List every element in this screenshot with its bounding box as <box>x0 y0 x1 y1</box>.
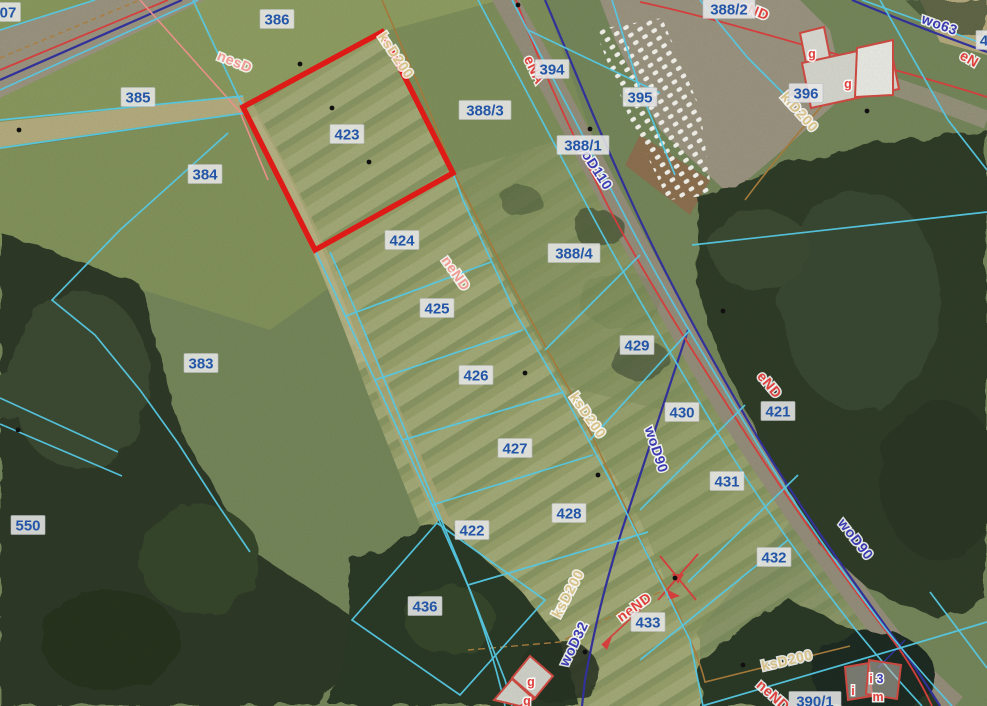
parcel-label-428: 428 <box>556 506 581 523</box>
survey-point <box>741 663 746 668</box>
parcel-label-426: 426 <box>463 368 488 385</box>
parcel-label-427: 427 <box>502 441 527 458</box>
building-label-i: i <box>851 684 854 698</box>
parcel-label-431: 431 <box>714 474 739 491</box>
map-viewport[interactable]: nesDksD200eNAeNDwo63eNklD200woD110neNDeN… <box>0 0 987 706</box>
parcel-label-430: 430 <box>669 405 694 422</box>
parcel-label-388/4: 388/4 <box>555 246 593 263</box>
survey-point <box>16 428 21 433</box>
survey-point <box>367 160 372 165</box>
parcel-label-432: 432 <box>761 550 786 567</box>
parcel-label-4: 4 <box>980 33 987 50</box>
parcel-label-429: 429 <box>624 338 649 355</box>
parcel-label-433: 433 <box>635 615 660 632</box>
building-label-i: i <box>869 672 872 686</box>
survey-point <box>588 127 593 132</box>
survey-point <box>17 128 22 133</box>
cadastral-map[interactable]: nesDksD200eNAeNDwo63eNklD200woD110neNDeN… <box>0 0 987 706</box>
building-label-m: m <box>872 690 883 704</box>
parcel-label-390/1: 390/1 <box>796 694 834 706</box>
parcel-label-423: 423 <box>334 127 359 144</box>
parcel-label-422: 422 <box>459 523 484 540</box>
survey-point <box>523 371 528 376</box>
parcel-label-388/1: 388/1 <box>564 138 602 155</box>
parcel-label-385: 385 <box>125 90 150 107</box>
building-label-g: g <box>808 47 816 61</box>
building-label-g: g <box>523 694 531 706</box>
parcel-label-394: 394 <box>539 62 565 79</box>
survey-point <box>865 109 870 114</box>
parcel-label-421: 421 <box>765 404 790 421</box>
parcel-label-395: 395 <box>627 90 652 107</box>
survey-point <box>673 576 678 581</box>
parcel-label-388/2: 388/2 <box>710 2 748 19</box>
survey-point <box>330 106 335 111</box>
survey-point <box>298 62 303 67</box>
parcel-label-424: 424 <box>389 233 415 250</box>
parcel-label-384: 384 <box>192 167 218 184</box>
parcel-label-425: 425 <box>424 301 449 318</box>
building-label-g: g <box>844 77 852 91</box>
parcel-label-550: 550 <box>15 518 40 535</box>
survey-point <box>596 473 601 478</box>
survey-point <box>516 3 521 8</box>
parcel-label-07: 07 <box>0 5 16 22</box>
survey-point <box>721 309 726 314</box>
parcel-label-388/3: 388/3 <box>466 103 504 120</box>
parcel-label-383: 383 <box>188 356 213 373</box>
building-label-g: g <box>527 675 535 689</box>
parcel-label-386: 386 <box>264 12 289 29</box>
building-label-3: 3 <box>877 672 884 686</box>
survey-point <box>583 650 588 655</box>
parcel-label-436: 436 <box>412 599 437 616</box>
parcel-label-396: 396 <box>793 86 818 103</box>
